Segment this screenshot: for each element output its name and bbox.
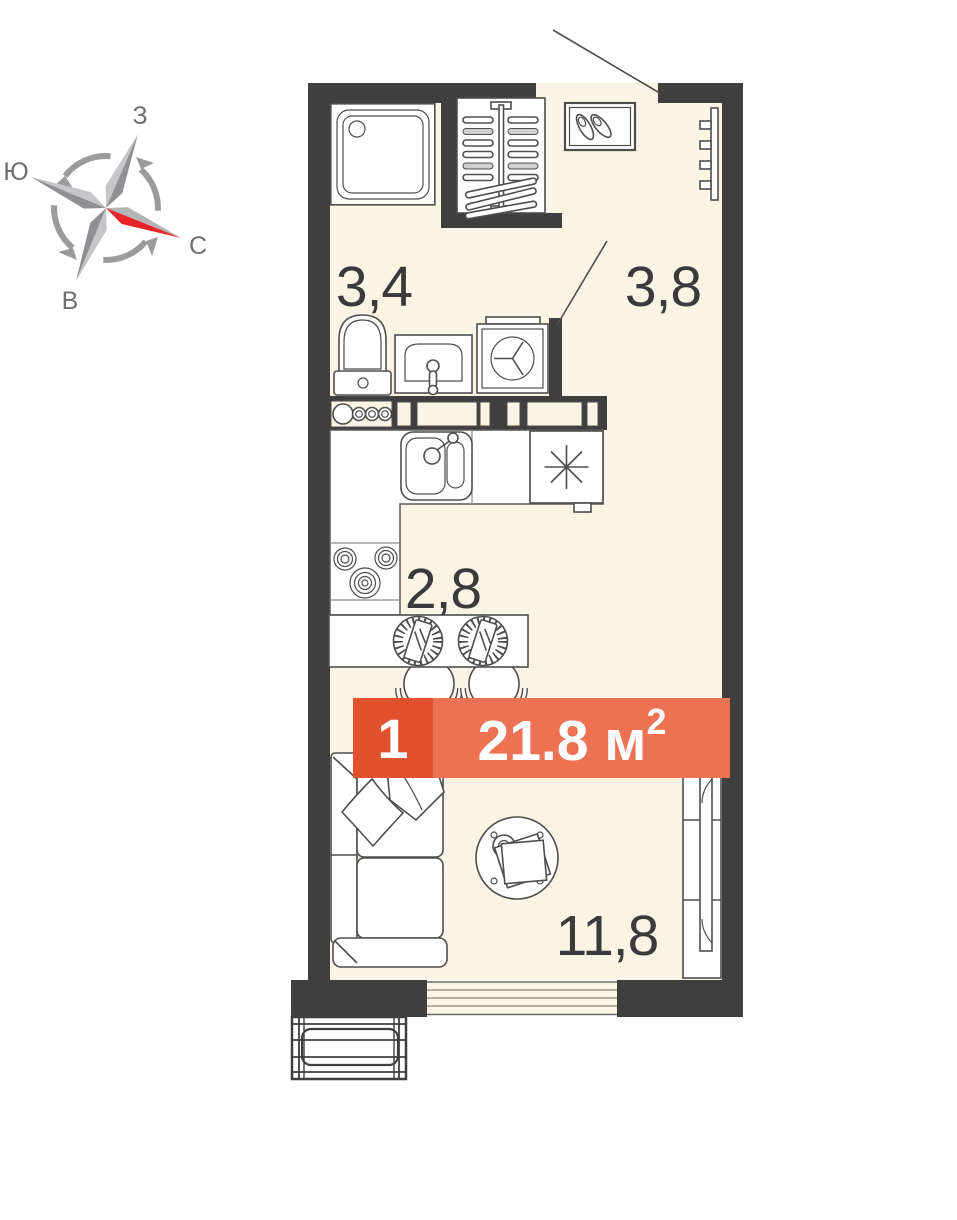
washbasin-icon	[395, 335, 472, 395]
place-setting-icon	[394, 617, 443, 666]
room-area-living: 11,8	[556, 904, 659, 968]
floor-plan-page: З Ю С В	[0, 0, 957, 1220]
compass-label-south: Ю	[3, 158, 28, 186]
place-setting-icon	[459, 617, 508, 666]
washing-machine-icon	[477, 317, 548, 393]
compass-label-east: В	[62, 287, 79, 315]
sofa-icon	[331, 753, 447, 967]
toilet-icon	[334, 315, 391, 395]
coffee-table-icon	[476, 817, 558, 899]
room-area-kitchen: 2,8	[405, 557, 481, 621]
compass-label-north: С	[189, 232, 207, 260]
room-area-bathroom: 3,4	[336, 255, 413, 319]
entrance-door-line	[553, 30, 658, 92]
stove-icon	[530, 431, 603, 512]
kitchen-sink-icon	[401, 432, 472, 500]
wall-duct-niches	[331, 401, 598, 427]
badge-area-superscript: 2	[646, 701, 666, 742]
french-balcony-icon	[292, 1017, 406, 1079]
hanger-closet-icon	[457, 98, 545, 219]
floor-plan-canvas: З Ю С В	[0, 0, 957, 1220]
area-badge: 1 21.8 м2	[353, 698, 730, 778]
badge-area-value: 21.8 м	[478, 709, 647, 773]
svg-text:21.8 м2: 21.8 м2	[478, 701, 667, 773]
room-area-hallway: 3,8	[625, 255, 701, 319]
compass-north-arrow	[106, 208, 181, 238]
shoe-cabinet-icon	[565, 103, 635, 150]
compass-rose-icon: З Ю С В	[3, 102, 207, 315]
sliding-wardrobe-icon	[683, 743, 721, 978]
compass-label-west: З	[132, 102, 147, 130]
shower-icon	[331, 104, 435, 205]
badge-room-count: 1	[377, 707, 408, 770]
window-icon	[427, 982, 617, 1015]
